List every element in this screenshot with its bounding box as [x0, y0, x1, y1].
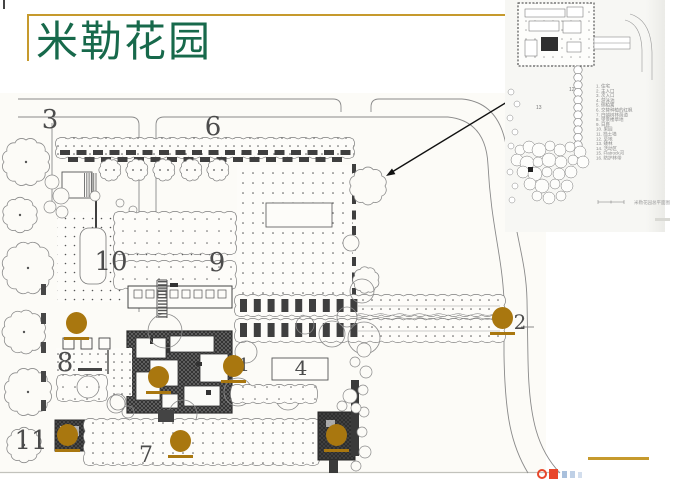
logo-blue-glyph	[570, 471, 575, 478]
legend-item: 16. 防护林带	[596, 156, 674, 161]
logo-blue-glyph	[578, 472, 582, 478]
title-accent-line-vertical	[27, 14, 29, 61]
plan-label-11: 11	[14, 428, 47, 454]
inset-number-13: 13	[536, 105, 542, 111]
logo-red-glyph	[549, 469, 558, 479]
slide: 米勒花园 3 6 10 9 8 1 4 2 11 7	[0, 0, 674, 501]
inset-caption-small	[655, 218, 670, 221]
marker-dot	[492, 307, 513, 329]
plan-label-10: 10	[94, 249, 127, 275]
inset-caption: 米勒花园总平面图	[634, 199, 670, 206]
logo-ring-icon	[537, 469, 547, 479]
plan-label-2: 2	[514, 312, 527, 332]
page-title: 米勒花园	[36, 20, 212, 64]
plan-label-4: 4	[295, 358, 308, 378]
logo-blue-glyph	[562, 471, 567, 478]
marker-dot	[148, 366, 169, 388]
marker-dot	[170, 430, 191, 452]
footer-accent-line	[588, 457, 649, 460]
marker-dot	[57, 424, 78, 446]
marker-dot	[66, 312, 87, 334]
plan-label-9: 9	[209, 250, 226, 276]
slide-edge-mark	[3, 0, 5, 9]
inset-legend: 1. 住宅 2. 主入口 3. 次入口 4. 游泳池 5. 侧柏篱 6. 交替种…	[596, 84, 674, 161]
title-accent-line-horizontal	[27, 14, 518, 16]
inset-scale-bar	[598, 200, 624, 204]
logo-partial	[537, 469, 597, 480]
plan-label-8: 8	[57, 350, 74, 376]
inset-number-12: 12	[569, 87, 575, 93]
plan-label-7: 7	[139, 445, 153, 467]
plan-label-3: 3	[42, 107, 59, 133]
marker-dot	[223, 355, 244, 377]
plan-label-6: 6	[205, 114, 222, 140]
marker-dot	[326, 424, 347, 446]
